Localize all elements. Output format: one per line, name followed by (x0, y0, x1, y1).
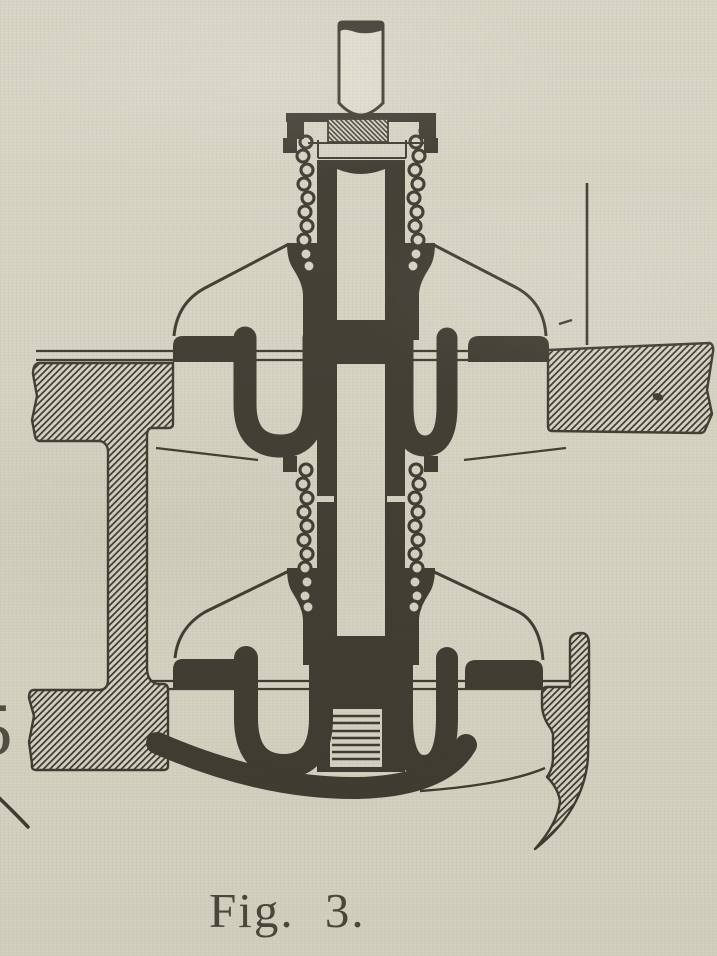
casing-wall-right (548, 343, 713, 433)
cap-bolt-right (419, 121, 436, 139)
gland-packing (328, 119, 388, 142)
cap-bolt-left (287, 121, 304, 139)
scanned-book-page: 5 Fig. 3. (0, 0, 717, 956)
margin-partial-character: 5 (0, 688, 13, 774)
double-beat-valve-cross-section (0, 0, 717, 956)
spindle (339, 22, 383, 115)
figure-caption: Fig. 3. (209, 882, 366, 939)
